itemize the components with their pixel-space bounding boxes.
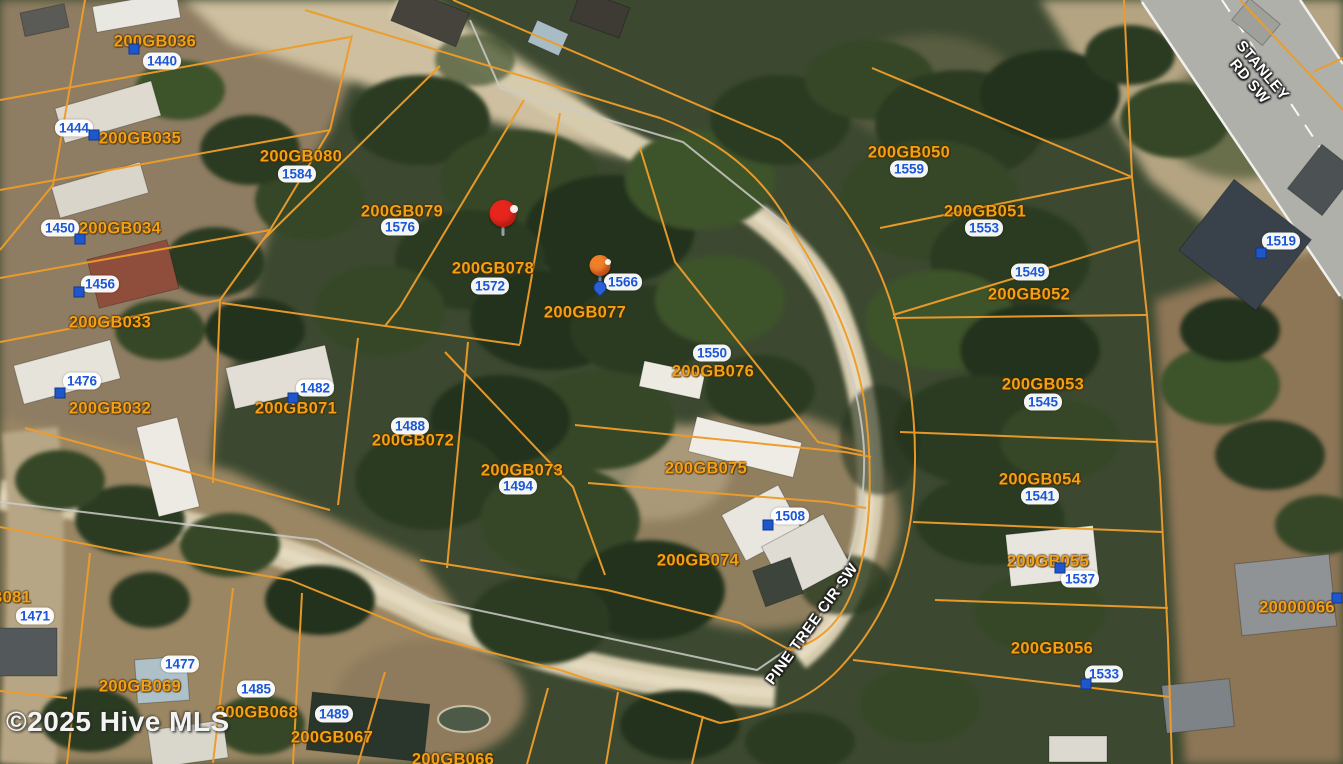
parcel-label[interactable]: 200GB052 [988, 286, 1070, 305]
parcel-label[interactable]: 200GB054 [999, 471, 1081, 490]
parcel-label[interactable]: 200GB053 [1002, 376, 1084, 395]
parcel-label[interactable]: 200GB080 [260, 148, 342, 167]
parcel-label[interactable]: 200GB079 [361, 203, 443, 222]
parcel-label[interactable]: 200GB066 [412, 751, 494, 764]
parcel-label[interactable]: 200GB069 [99, 678, 181, 697]
parcel-label[interactable]: 200GB034 [79, 220, 161, 239]
parcel-label[interactable]: 200GB055 [1007, 553, 1089, 572]
parcel-label[interactable]: 200GB077 [544, 304, 626, 323]
parcel-label[interactable]: 200GB078 [452, 260, 534, 279]
parcel-label[interactable]: 200GB051 [944, 203, 1026, 222]
parcel-label[interactable]: 200GB067 [291, 729, 373, 748]
parcel-label[interactable]: 200GB035 [99, 130, 181, 149]
parcel-label[interactable]: 200GB073 [481, 462, 563, 481]
parcel-label[interactable]: 200GB033 [69, 314, 151, 333]
parcel-label[interactable]: 200GB050 [868, 144, 950, 163]
parcel-label[interactable]: 200GB074 [657, 552, 739, 571]
aerial-imagery [0, 0, 1343, 764]
parcel-label[interactable]: 200GB032 [69, 400, 151, 419]
parcel-label[interactable]: 200GB081 [0, 589, 31, 608]
map-canvas[interactable]: 200GB036200GB035200GB034200GB033200GB032… [0, 0, 1343, 764]
parcel-label[interactable]: 200GB075 [665, 460, 747, 479]
parcel-label[interactable]: 200GB036 [114, 33, 196, 52]
parcel-label[interactable]: 200GB076 [672, 363, 754, 382]
parcel-label[interactable]: 200GB071 [255, 400, 337, 419]
parcel-label[interactable]: 200GB072 [372, 432, 454, 451]
parcel-label[interactable]: 200GB056 [1011, 640, 1093, 659]
parcel-label[interactable]: 20000066 [1259, 599, 1335, 618]
attribution-watermark: ©2025 Hive MLS [6, 706, 230, 738]
